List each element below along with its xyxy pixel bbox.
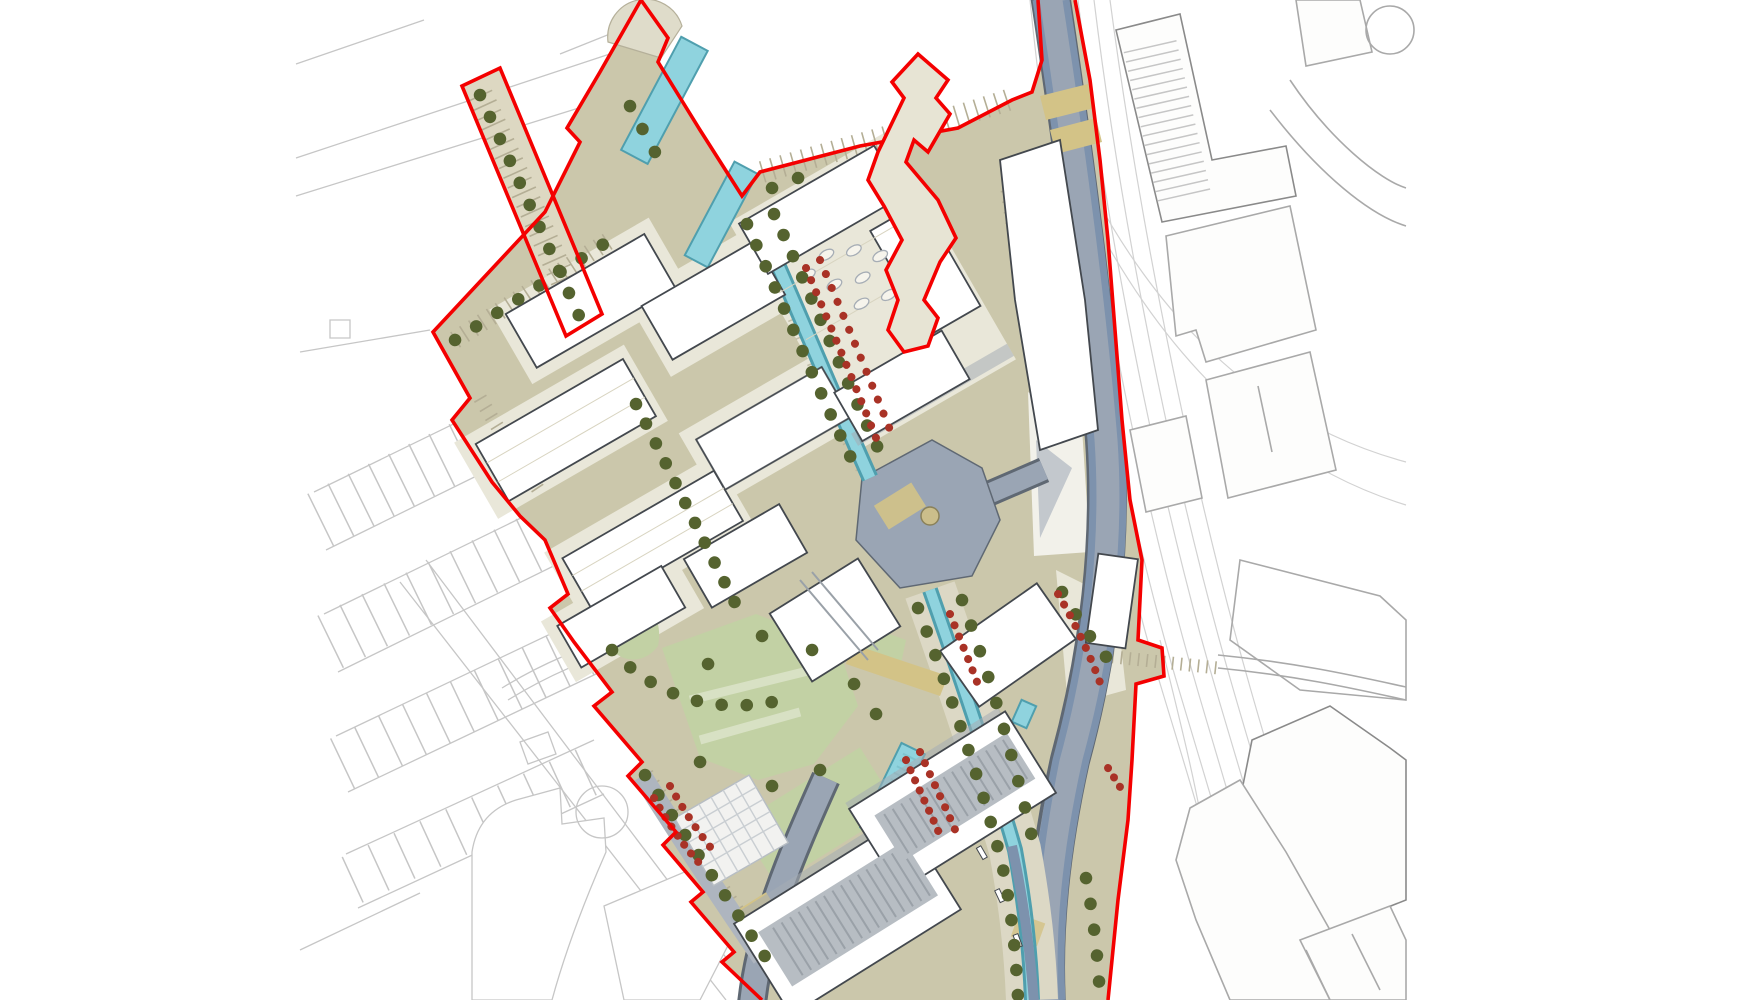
junction-circle (921, 507, 939, 525)
masterplan-figure (0, 0, 1760, 1000)
masterplan-drawing (0, 0, 1760, 1000)
context-buildings-right (1093, 0, 1414, 1000)
